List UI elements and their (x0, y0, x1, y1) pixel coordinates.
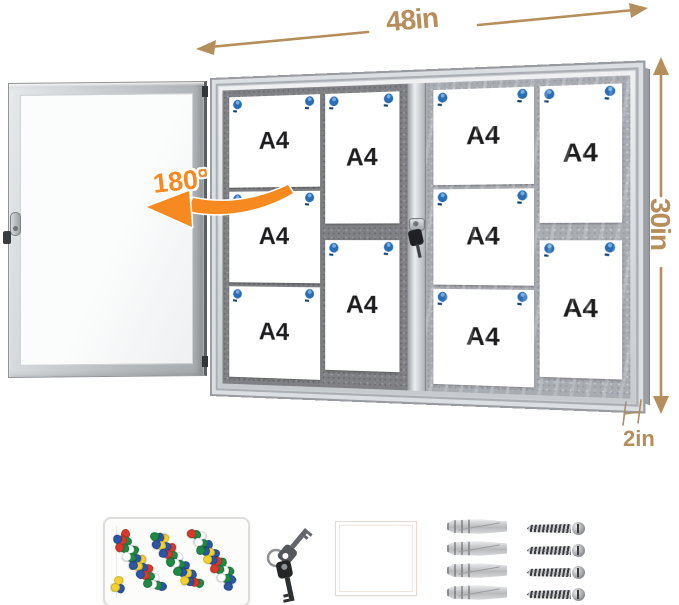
a4-sheet-label: A4 (259, 223, 289, 252)
a4-sheet: A4 (229, 286, 319, 380)
pushpin-icon (303, 191, 315, 204)
pushpin-icon (515, 87, 529, 100)
a4-sheet-label: A4 (563, 138, 598, 169)
a4-sheet: A4 (229, 191, 319, 284)
screw-icon (527, 544, 585, 557)
pushpin-icon (436, 191, 449, 204)
hinge-icon (202, 356, 208, 367)
a4-sheet-label: A4 (563, 294, 598, 325)
sheet-column: A4 A4 (325, 91, 400, 382)
a4-sheet: A4 (539, 240, 622, 379)
screw-icon (527, 588, 585, 601)
a4-sheet-label: A4 (466, 121, 500, 152)
open-door (8, 81, 207, 378)
right-compartment: A4 A4 A4 (426, 75, 630, 398)
center-frame-bar (407, 83, 426, 391)
a4-sheet-label: A4 (466, 222, 500, 252)
cabinet: A4 A4 A4 (210, 60, 646, 413)
pushpin-icon (542, 242, 556, 255)
pushpin-icon (303, 95, 315, 108)
wall-anchor-icon (447, 563, 507, 578)
key-icon (276, 525, 313, 565)
pushpin-icon (231, 288, 243, 300)
paper-stack-icon (335, 521, 417, 596)
hinge-icon (202, 86, 208, 97)
screw-icon (527, 566, 585, 579)
screws-group (527, 522, 585, 601)
sheet-column: A4 A4 (539, 83, 622, 390)
pushpin-icon (231, 193, 243, 205)
pushpin-icon (303, 288, 315, 301)
left-compartment: A4 A4 A4 (222, 84, 406, 391)
pushpin-icon (382, 241, 395, 254)
pushpin-icon (515, 189, 529, 202)
cabinet-frame: A4 A4 A4 (210, 60, 646, 413)
a4-sheet: A4 (325, 240, 400, 372)
product-image: 48in 30in 2in 180° A4 A4 (0, 0, 679, 605)
a4-sheet: A4 (539, 83, 622, 223)
a4-sheet: A4 (325, 91, 400, 223)
pushpin-icon (603, 84, 617, 98)
wall-anchors-group (447, 519, 507, 600)
screw-icon (527, 522, 585, 535)
a4-sheet-label: A4 (346, 291, 378, 321)
pushpin-icon (603, 241, 617, 255)
key-icon (407, 229, 424, 247)
pushpin-box-icon (103, 517, 250, 605)
swing-angle-label: 180° (152, 163, 211, 200)
sheet-column: A4 A4 A4 (229, 94, 319, 380)
lock-icon (409, 219, 425, 232)
wall-anchor-icon (447, 541, 507, 556)
pushpin-icon (231, 98, 243, 110)
arrow-left-head (196, 40, 216, 55)
a4-sheet-label: A4 (259, 318, 289, 347)
door-lock-icon (10, 212, 21, 236)
a4-sheet: A4 (433, 289, 533, 388)
arrow-right-head (629, 3, 648, 18)
pushpin-box-contents (110, 524, 243, 600)
a4-sheet-label: A4 (466, 322, 500, 353)
wall-anchor-icon (447, 519, 507, 534)
a4-sheet-label: A4 (346, 143, 378, 173)
arrow-down-head (653, 396, 669, 414)
pushpin-icon (436, 91, 449, 104)
pushpin-icon (542, 87, 556, 100)
pushpin-icon (327, 241, 340, 254)
wall-anchor-icon (447, 585, 507, 600)
height-dimension-label: 30in (644, 198, 676, 250)
key-icon (275, 560, 298, 603)
arrow-up-head (653, 57, 669, 75)
depth-dimension-label: 2in (623, 426, 655, 452)
pushpin-icon (382, 92, 395, 105)
a4-sheet: A4 (433, 87, 533, 186)
pushpin-icon (515, 290, 529, 303)
width-dimension-label: 48in (385, 2, 440, 38)
pushpin-icon (436, 290, 449, 303)
sheet-column: A4 A4 A4 (433, 87, 533, 388)
keys-icon (250, 518, 328, 604)
a4-sheet-label: A4 (259, 127, 289, 156)
pushpin-icon (327, 95, 340, 108)
a4-sheet: A4 (433, 188, 533, 285)
a4-sheet: A4 (229, 94, 319, 188)
door-panel (20, 93, 193, 366)
